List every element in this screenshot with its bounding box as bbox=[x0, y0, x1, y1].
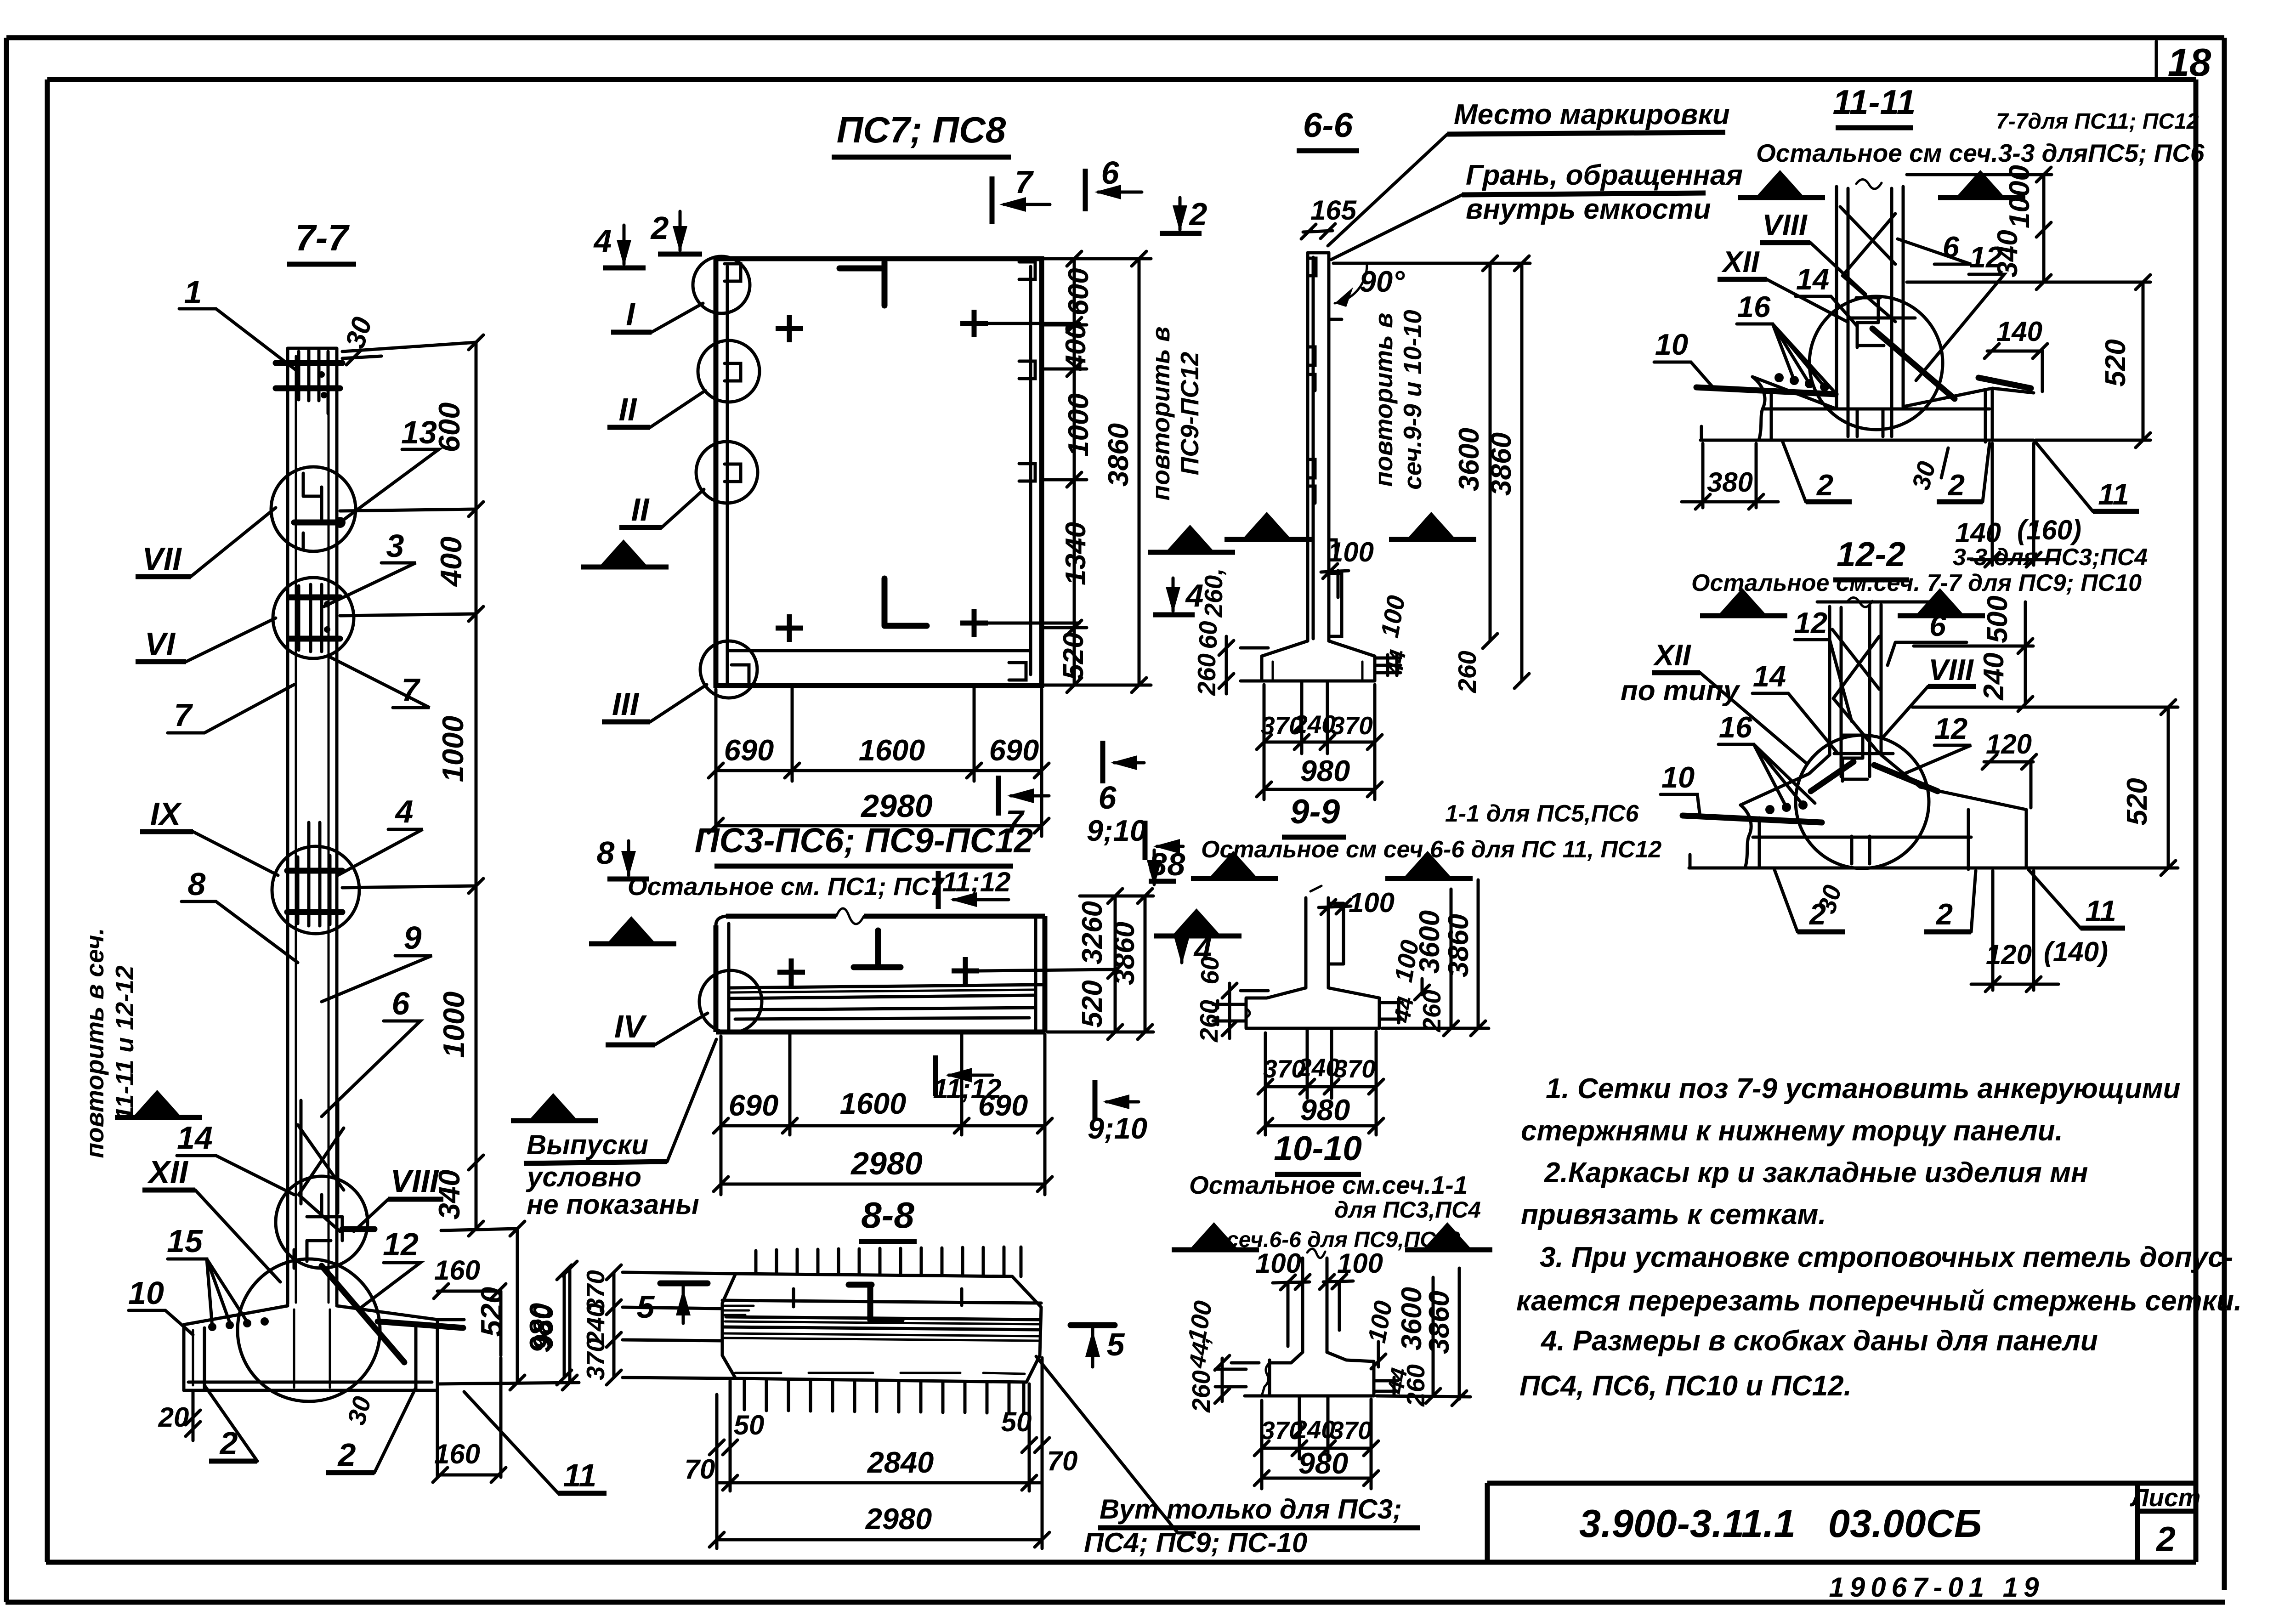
svg-text:2980: 2980 bbox=[860, 788, 933, 824]
svg-text:20: 20 bbox=[158, 1402, 189, 1433]
svg-text:Выпуски: Выпуски bbox=[527, 1129, 648, 1160]
svg-text:240: 240 bbox=[1978, 652, 2010, 700]
svg-text:10-10: 10-10 bbox=[1274, 1129, 1362, 1168]
svg-text:не показаны: не показаны bbox=[527, 1189, 699, 1220]
svg-text:1000: 1000 bbox=[436, 716, 470, 782]
svg-text:XII: XII bbox=[1653, 638, 1691, 672]
svg-text:ПС4; ПС9; ПС-10: ПС4; ПС9; ПС-10 bbox=[1084, 1527, 1307, 1558]
svg-text:7: 7 bbox=[174, 697, 193, 733]
svg-text:6: 6 bbox=[1929, 609, 1946, 642]
svg-text:1: 1 bbox=[184, 274, 202, 310]
svg-text:Место маркировки: Место маркировки bbox=[1454, 99, 1730, 130]
svg-text:980: 980 bbox=[1300, 754, 1350, 788]
svg-text:160: 160 bbox=[434, 1439, 480, 1469]
svg-text:1600: 1600 bbox=[840, 1087, 907, 1120]
svg-text:165: 165 bbox=[1310, 195, 1357, 226]
svg-text:50: 50 bbox=[734, 1410, 765, 1440]
svg-text:Остальное см.сеч.1-1: Остальное см.сеч.1-1 bbox=[1189, 1171, 1468, 1199]
svg-text:14: 14 bbox=[1796, 262, 1829, 296]
svg-text:140: 140 bbox=[1996, 316, 2042, 347]
svg-text:XII: XII bbox=[147, 1154, 188, 1190]
svg-text:IX: IX bbox=[150, 796, 182, 832]
svg-text:2980: 2980 bbox=[850, 1145, 923, 1181]
svg-text:(140): (140) bbox=[2044, 936, 2108, 967]
svg-text:60: 60 bbox=[1196, 956, 1224, 985]
svg-text:520: 520 bbox=[1077, 980, 1108, 1027]
svg-text:10: 10 bbox=[128, 1275, 164, 1311]
svg-text:9;10: 9;10 bbox=[1087, 814, 1146, 847]
svg-text:VIII: VIII bbox=[1928, 653, 1974, 686]
svg-text:70: 70 bbox=[685, 1454, 715, 1485]
svg-text:II: II bbox=[631, 492, 650, 527]
svg-text:2: 2 bbox=[1935, 897, 1953, 931]
svg-text:ПС7; ПС8: ПС7; ПС8 bbox=[837, 109, 1006, 150]
svg-text:8: 8 bbox=[188, 866, 206, 902]
svg-text:10: 10 bbox=[1661, 760, 1695, 794]
svg-text:1000: 1000 bbox=[2004, 165, 2035, 228]
svg-text:14: 14 bbox=[177, 1120, 213, 1156]
svg-text:повторить в: повторить в bbox=[1146, 327, 1175, 501]
svg-text:140: 140 bbox=[1955, 517, 2001, 548]
svg-text:260,: 260, bbox=[1199, 568, 1228, 618]
svg-text:6: 6 bbox=[1101, 155, 1120, 191]
svg-text:3860: 3860 bbox=[1103, 423, 1134, 487]
svg-text:1340: 1340 bbox=[1060, 522, 1092, 585]
svg-text:370: 370 bbox=[1330, 1416, 1372, 1445]
svg-text:8: 8 bbox=[597, 835, 615, 871]
svg-text:120: 120 bbox=[1986, 729, 2032, 760]
svg-text:600: 600 bbox=[432, 402, 466, 452]
svg-text:2: 2 bbox=[1189, 196, 1208, 232]
svg-text:3600: 3600 bbox=[1414, 910, 1446, 974]
svg-text:400: 400 bbox=[434, 537, 468, 587]
svg-text:690: 690 bbox=[989, 733, 1039, 767]
svg-text:370: 370 bbox=[1333, 1054, 1376, 1083]
svg-text:11-11 и 12-12: 11-11 и 12-12 bbox=[110, 965, 139, 1121]
svg-text:50: 50 bbox=[1001, 1406, 1032, 1437]
svg-text:3860: 3860 bbox=[1423, 1291, 1455, 1354]
svg-text:12: 12 bbox=[1934, 712, 1967, 745]
svg-text:2980: 2980 bbox=[865, 1502, 932, 1536]
svg-text:условно: условно bbox=[526, 1162, 641, 1192]
svg-text:1000: 1000 bbox=[437, 992, 471, 1058]
svg-text:13: 13 bbox=[401, 414, 437, 450]
svg-text:Остальное см сеч.3-3 дляПС5; П: Остальное см сеч.3-3 дляПС5; ПС6 bbox=[1756, 139, 2205, 167]
svg-text:ПС4, ПС6, ПС10 и ПС12.: ПС4, ПС6, ПС10 и ПС12. bbox=[1519, 1370, 1852, 1402]
svg-text:VIII: VIII bbox=[1762, 208, 1808, 242]
svg-text:ПС9-ПС12: ПС9-ПС12 bbox=[1175, 351, 1204, 475]
svg-text:5: 5 bbox=[1107, 1327, 1125, 1362]
svg-text:980: 980 bbox=[1300, 1093, 1350, 1127]
svg-text:3: 3 bbox=[386, 528, 404, 564]
svg-text:10: 10 bbox=[1655, 328, 1688, 361]
svg-text:2: 2 bbox=[2155, 1519, 2176, 1558]
svg-text:260: 260 bbox=[1195, 1000, 1223, 1043]
svg-text:IV: IV bbox=[614, 1009, 647, 1044]
svg-text:11: 11 bbox=[2098, 477, 2129, 511]
svg-text:Остальное см. ПС1; ПС7: Остальное см. ПС1; ПС7 bbox=[628, 872, 945, 901]
svg-text:Грань, обращенная: Грань, обращенная bbox=[1466, 159, 1743, 191]
svg-text:520: 520 bbox=[1058, 632, 1089, 680]
svg-text:980: 980 bbox=[1298, 1446, 1348, 1480]
svg-text:260: 260 bbox=[1401, 1364, 1430, 1407]
svg-text:370: 370 bbox=[581, 1338, 610, 1380]
svg-text:12: 12 bbox=[1794, 606, 1827, 640]
svg-text:3. При установке строповочных: 3. При установке строповочных петель доп… bbox=[1540, 1242, 2233, 1273]
svg-text:7-7для ПС11; ПС12: 7-7для ПС11; ПС12 bbox=[1996, 109, 2199, 134]
svg-text:1-1 для ПС5,ПС6: 1-1 для ПС5,ПС6 bbox=[1445, 800, 1639, 827]
svg-text:11: 11 bbox=[563, 1457, 597, 1493]
svg-text:6-6: 6-6 bbox=[1303, 106, 1354, 144]
svg-text:260: 260 bbox=[1192, 653, 1221, 696]
svg-text:2840: 2840 bbox=[867, 1446, 934, 1479]
svg-text:II: II bbox=[619, 391, 637, 427]
svg-text:240: 240 bbox=[1293, 1415, 1335, 1444]
svg-text:520: 520 bbox=[2121, 778, 2153, 825]
svg-text:14: 14 bbox=[1753, 659, 1786, 693]
svg-text:340: 340 bbox=[432, 1170, 466, 1219]
svg-text:60: 60 bbox=[1194, 621, 1222, 649]
svg-text:100: 100 bbox=[1349, 887, 1395, 918]
svg-text:сеч.9-9 и 10-10: сеч.9-9 и 10-10 bbox=[1398, 310, 1427, 490]
svg-text:12: 12 bbox=[383, 1226, 419, 1262]
svg-text:100: 100 bbox=[1337, 1248, 1383, 1279]
svg-text:8: 8 bbox=[1168, 846, 1185, 882]
svg-text:11-11: 11-11 bbox=[1833, 83, 1916, 121]
svg-text:400: 400 bbox=[1060, 323, 1092, 371]
svg-text:3-3 для ПС3;ПС4: 3-3 для ПС3;ПС4 bbox=[1953, 544, 2148, 571]
svg-text:внутрь емкости: внутрь емкости bbox=[1466, 193, 1711, 225]
svg-text:привязать к сеткам.: привязать к сеткам. bbox=[1521, 1199, 1826, 1230]
svg-text:2: 2 bbox=[650, 210, 669, 246]
svg-text:VI: VI bbox=[145, 626, 176, 662]
svg-text:1000: 1000 bbox=[1063, 393, 1094, 457]
svg-text:(160): (160) bbox=[2017, 515, 2081, 545]
svg-text:600: 600 bbox=[1063, 268, 1094, 315]
svg-text:2: 2 bbox=[337, 1437, 356, 1473]
svg-text:7: 7 bbox=[1015, 164, 1034, 200]
svg-text:500: 500 bbox=[1982, 595, 2013, 643]
svg-text:3.900-3.11.1 03.00СБ: 3.900-3.11.1 03.00СБ bbox=[1579, 1502, 1982, 1546]
svg-text:3860: 3860 bbox=[1443, 914, 1474, 977]
svg-text:12-2: 12-2 bbox=[1837, 535, 1905, 573]
svg-text:70: 70 bbox=[1047, 1446, 1078, 1476]
svg-text:7-7: 7-7 bbox=[295, 217, 350, 258]
svg-text:I: I bbox=[626, 296, 635, 332]
svg-text:370: 370 bbox=[1331, 711, 1373, 740]
svg-text:повторить в: повторить в bbox=[1369, 313, 1398, 487]
svg-text:6: 6 bbox=[1099, 780, 1117, 816]
svg-text:3600: 3600 bbox=[1453, 428, 1485, 491]
svg-text:260: 260 bbox=[1187, 1370, 1215, 1413]
svg-text:3860: 3860 bbox=[1485, 432, 1517, 496]
svg-text:1600: 1600 bbox=[859, 733, 925, 767]
svg-text:15: 15 bbox=[167, 1223, 203, 1259]
svg-text:2: 2 bbox=[1947, 468, 1965, 502]
svg-text:520: 520 bbox=[475, 1287, 508, 1337]
svg-text:16: 16 bbox=[1719, 710, 1752, 744]
svg-text:44: 44 bbox=[1381, 648, 1411, 678]
svg-text:Лист: Лист bbox=[2130, 1483, 2201, 1512]
svg-text:8: 8 bbox=[1149, 846, 1167, 882]
svg-text:9: 9 bbox=[404, 920, 422, 956]
svg-text:980: 980 bbox=[528, 1304, 559, 1350]
svg-text:690: 690 bbox=[729, 1088, 778, 1122]
svg-text:2.Каркасы кр и закладные издел: 2.Каркасы кр и закладные изделия мн bbox=[1544, 1157, 2088, 1189]
svg-text:90°: 90° bbox=[1360, 265, 1405, 298]
svg-text:380: 380 bbox=[1707, 467, 1753, 498]
svg-text:3860: 3860 bbox=[1109, 922, 1140, 985]
svg-text:4. Размеры в скобках даны для: 4. Размеры в скобках даны для панели bbox=[1540, 1325, 2098, 1357]
svg-text:Вут только для ПС3;: Вут только для ПС3; bbox=[1100, 1494, 1402, 1525]
svg-text:1. Сетки поз 7-9 установить ан: 1. Сетки поз 7-9 установить анкерующими bbox=[1546, 1073, 2180, 1105]
svg-text:160: 160 bbox=[434, 1255, 480, 1286]
svg-text:260: 260 bbox=[1453, 651, 1481, 693]
svg-text:340: 340 bbox=[1992, 230, 2024, 277]
svg-text:Остальное см.сеч. 7-7 для ПС9;: Остальное см.сеч. 7-7 для ПС9; ПС10 bbox=[1691, 570, 2142, 596]
svg-text:100: 100 bbox=[1328, 537, 1374, 567]
svg-text:для ПС3,ПС4: для ПС3,ПС4 bbox=[1334, 1197, 1481, 1223]
svg-text:3600: 3600 bbox=[1396, 1287, 1428, 1350]
svg-text:3260: 3260 bbox=[1077, 901, 1108, 964]
svg-text:520: 520 bbox=[2100, 339, 2132, 386]
svg-text:ПС3-ПС6; ПС9-ПС12: ПС3-ПС6; ПС9-ПС12 bbox=[695, 821, 1033, 860]
svg-text:повторить в сеч.: повторить в сеч. bbox=[80, 928, 109, 1158]
svg-text:19067-01 19: 19067-01 19 bbox=[1829, 1572, 2045, 1603]
svg-text:690: 690 bbox=[724, 733, 774, 767]
svg-text:XII: XII bbox=[1721, 245, 1760, 278]
svg-text:2: 2 bbox=[1816, 468, 1833, 502]
svg-text:VII: VII bbox=[142, 541, 182, 577]
svg-text:9-9: 9-9 bbox=[1290, 792, 1340, 831]
svg-text:III: III bbox=[612, 686, 640, 722]
svg-text:16: 16 bbox=[1737, 290, 1771, 323]
svg-text:стержнями к нижнему торцу пане: стержнями к нижнему торцу панели. bbox=[1521, 1115, 2063, 1147]
svg-text:4: 4 bbox=[593, 223, 612, 259]
svg-text:кается перерезать поперечный с: кается перерезать поперечный стержень се… bbox=[1516, 1285, 2242, 1317]
svg-text:8-8: 8-8 bbox=[861, 1195, 914, 1236]
svg-text:240: 240 bbox=[1293, 710, 1336, 738]
svg-text:6: 6 bbox=[392, 986, 410, 1021]
svg-text:4: 4 bbox=[395, 794, 414, 829]
svg-text:11: 11 bbox=[2085, 894, 2116, 928]
